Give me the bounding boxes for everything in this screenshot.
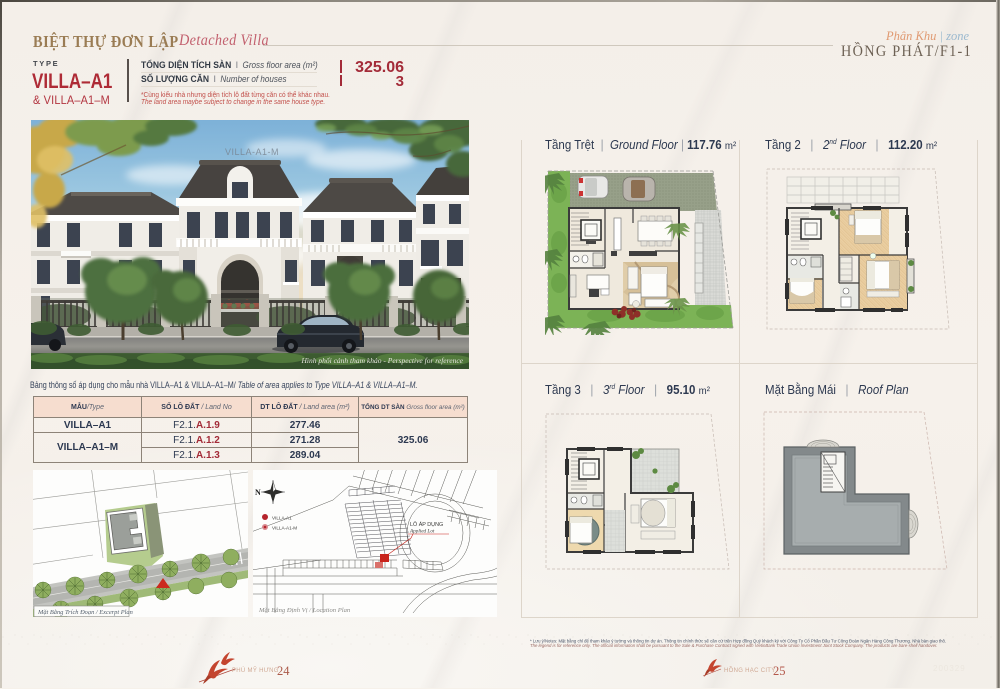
svg-text:N: N: [255, 488, 261, 497]
svg-text:VILLA-A1-M: VILLA-A1-M: [225, 147, 279, 157]
svg-text:Mặt Bằng Định Vị / Location Pl: Mặt Bằng Định Vị / Location Plan: [258, 607, 351, 614]
svg-text:Mặt Bằng Trích Đoạn / Excerpt: Mặt Bằng Trích Đoạn / Excerpt Plan: [37, 609, 133, 616]
svg-text:LÔ ÁP DỤNG: LÔ ÁP DỤNG: [410, 521, 443, 528]
svg-text:Applied Lot: Applied Lot: [409, 529, 435, 535]
svg-text:VILLA-A1-M: VILLA-A1-M: [272, 526, 297, 531]
svg-text:VILLA-A1: VILLA-A1: [272, 516, 292, 521]
svg-text:Hình phối cảnh tham khảo - Per: Hình phối cảnh tham khảo - Perspective f…: [301, 356, 464, 365]
